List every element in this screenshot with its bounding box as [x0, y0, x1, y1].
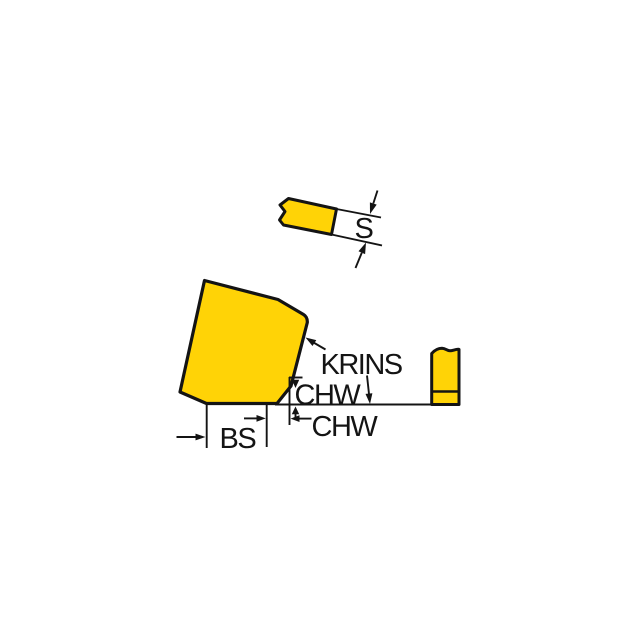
label-chw-lower: CHW	[312, 411, 379, 443]
bs-arrow-head-icon	[196, 434, 206, 441]
insert-side-view-shape	[280, 199, 337, 235]
label-chw-upper: CHW	[295, 380, 362, 412]
s-arrow-upper-shaft	[373, 191, 377, 204]
s-arrow-lower-shaft	[356, 253, 362, 268]
chw-width-right-arrow-head-icon	[257, 415, 266, 422]
label-krins: KRINS	[321, 349, 403, 381]
technical-drawing: S KRINS CHW CHW BS	[0, 0, 640, 640]
label-thickness-s: S	[355, 213, 374, 245]
krins-leader-corner-head-icon	[306, 338, 317, 347]
insert-diagram-canvas: S KRINS CHW CHW BS	[0, 0, 640, 640]
krins-leader-base-head-icon	[366, 393, 373, 404]
insert-profile-view-shape	[432, 348, 459, 404]
label-bs: BS	[220, 423, 257, 455]
insert-front-view-shape	[180, 281, 307, 404]
